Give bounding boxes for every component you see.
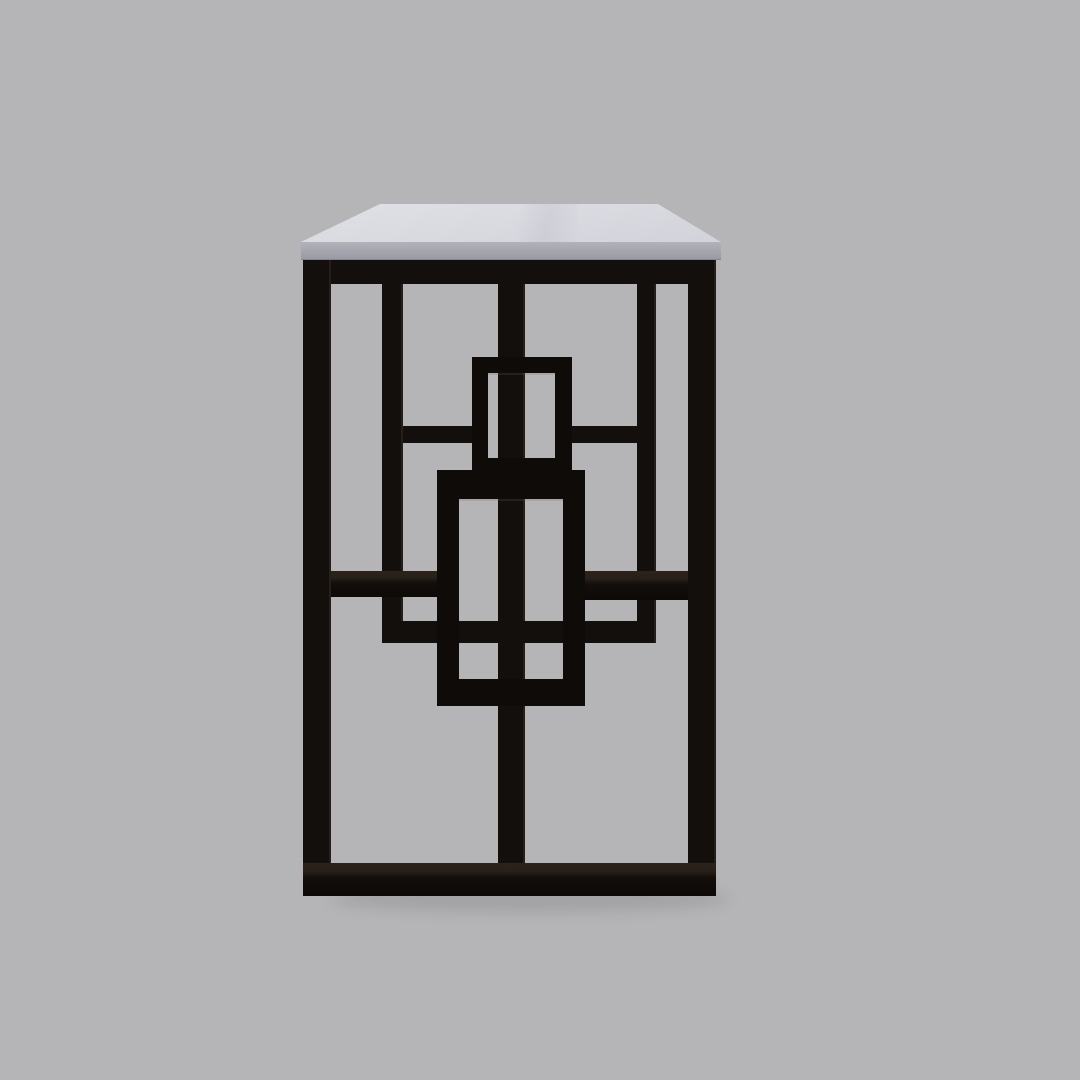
tabletop-layer: [0, 0, 1080, 1080]
product-photo-console-table: [0, 0, 1080, 1080]
tabletop-edge: [301, 242, 721, 260]
tabletop-surface: [301, 204, 721, 242]
tabletop-grain-streak: [519, 204, 578, 242]
